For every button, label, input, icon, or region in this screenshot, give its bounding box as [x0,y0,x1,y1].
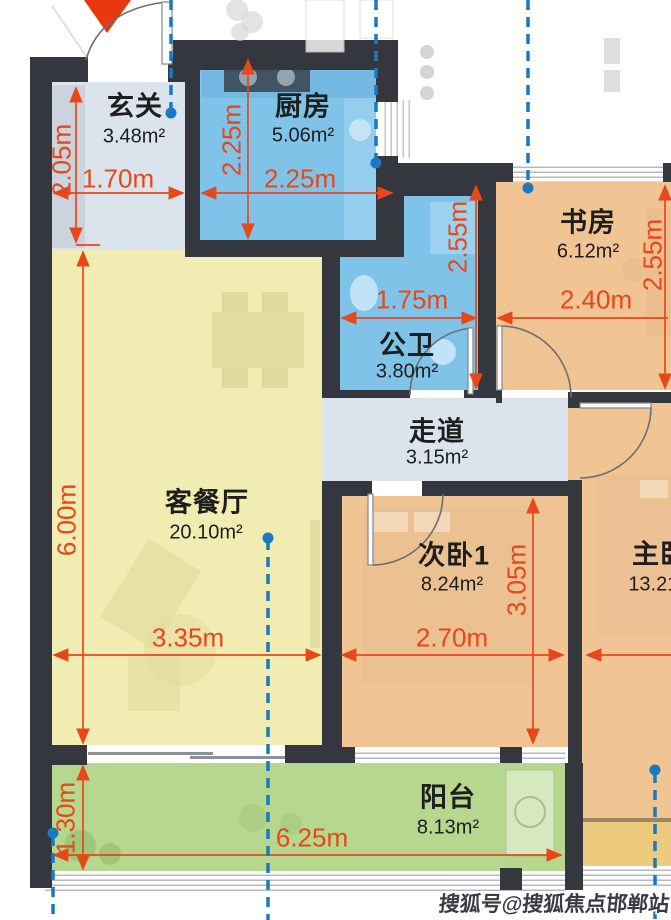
bay-window-sill [583,818,671,822]
wall [663,163,671,182]
room-area-bedroom-2: 8.24m² [421,574,483,597]
room-area-study: 6.12m² [557,241,619,264]
wall [322,496,342,748]
dim-label-kitchen-width: 2.25m [264,164,336,195]
wall [322,481,372,496]
room-label-balcony: 阳台 [420,776,476,815]
room-label-bathroom: 公卫 [379,324,435,363]
watermark: 搜狐号@搜狐焦点邯郸站 [437,888,671,918]
dim-label-balcony-width: 6.25m [276,823,348,854]
wall [396,180,480,196]
wall [464,390,478,398]
wall [335,747,355,763]
room-area-entry-hall: 3.48m² [103,126,165,149]
room-label-kitchen: 厨房 [275,85,331,124]
room-label-study: 书房 [560,201,616,240]
room-area-bathroom: 3.80m² [376,361,438,384]
room-label-master-bedroom: 主卧 [632,533,671,572]
wall [565,763,583,890]
room-label-entry-hall: 玄关 [107,85,163,124]
room-bay-window [583,822,671,866]
room-label-living-dining: 客餐厅 [165,481,249,520]
dim-label-living-height: 6.00m [52,484,83,556]
wall [52,745,87,765]
floor-plan: 玄关 3.48m² 厨房 5.06m² 书房 6.12m² 公卫 3.80m² … [0,0,671,920]
room-area-balcony: 8.13m² [417,817,479,840]
wall [422,481,568,496]
wall [496,390,502,403]
bay-window-glass [583,866,671,886]
dim-label-living-width: 3.35m [152,623,224,654]
study-window [513,163,663,182]
dim-label-balcony-height: 1.30m [51,782,82,854]
wall [168,57,185,82]
wall [285,745,335,763]
dim-label-kitchen-height: 2.25m [217,104,248,176]
dim-label-bedroom1-height: 3.05m [502,544,533,616]
wall [500,747,522,763]
entry-arrow-icon [84,0,131,33]
room-label-bedroom-2: 次卧1 [418,534,490,573]
bedroom2-window-right [522,749,565,761]
wall [568,392,582,408]
wall [185,68,200,243]
bedroom2-window [355,749,500,761]
wall [478,180,496,398]
wall [340,390,410,398]
dim-label-bath-width: 1.75m [376,285,448,316]
dim-label-bedroom1-width: 2.70m [416,623,488,654]
entry-door [86,2,172,64]
room-area-corridor: 3.15m² [406,447,468,470]
room-master-bedroom [582,403,671,818]
wall [568,392,671,403]
room-area-living-dining: 20.10m² [169,522,242,545]
wall [322,257,340,398]
master-doorway [568,408,582,480]
room-area-kitchen: 5.06m² [272,125,334,148]
wall [173,40,398,70]
room-label-corridor: 走道 [409,410,465,449]
balcony-sliding-door-2 [190,756,290,759]
room-area-master-bedroom: 13.21m² [628,574,671,597]
dim-label-bath-height: 2.55m [443,201,474,273]
dim-label-hall-height: 2.05m [47,124,78,196]
wall [394,196,404,257]
room-balcony [52,763,565,872]
dim-label-study-width: 2.40m [560,285,632,316]
stair-hatch [380,100,413,158]
wall [568,480,582,763]
wall [30,57,88,82]
dim-label-study-height: 2.55m [638,219,669,291]
balcony-sliding-door [88,752,213,755]
dim-label-hall-width: 1.70m [82,164,154,195]
wall [185,240,400,257]
wall [500,868,522,890]
wall [376,40,398,102]
